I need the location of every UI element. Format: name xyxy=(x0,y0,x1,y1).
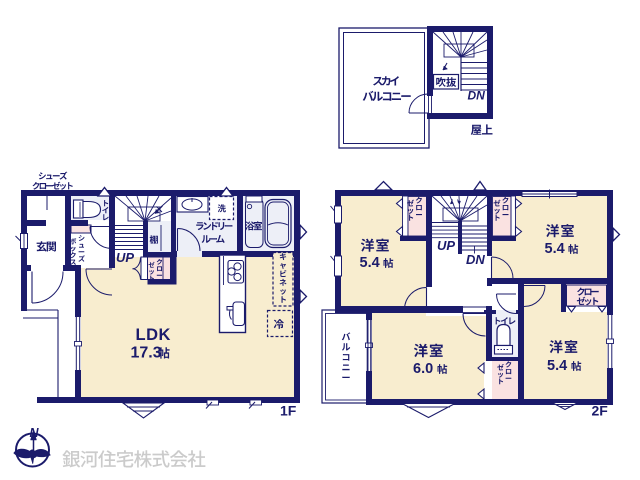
svg-text:UP: UP xyxy=(116,250,134,265)
svg-text:5.4: 5.4 xyxy=(360,255,380,271)
svg-text:LDK: LDK xyxy=(136,326,171,344)
svg-text:DN: DN xyxy=(468,89,486,103)
svg-text:5.4: 5.4 xyxy=(545,241,565,257)
svg-text:DN: DN xyxy=(466,252,485,267)
svg-text:6.0: 6.0 xyxy=(413,361,433,377)
svg-text:5.4: 5.4 xyxy=(547,358,567,374)
svg-text:17.3: 17.3 xyxy=(131,345,162,362)
svg-text:2F: 2F xyxy=(592,403,609,419)
svg-text:1F: 1F xyxy=(280,403,297,419)
svg-text:UP: UP xyxy=(437,238,455,253)
